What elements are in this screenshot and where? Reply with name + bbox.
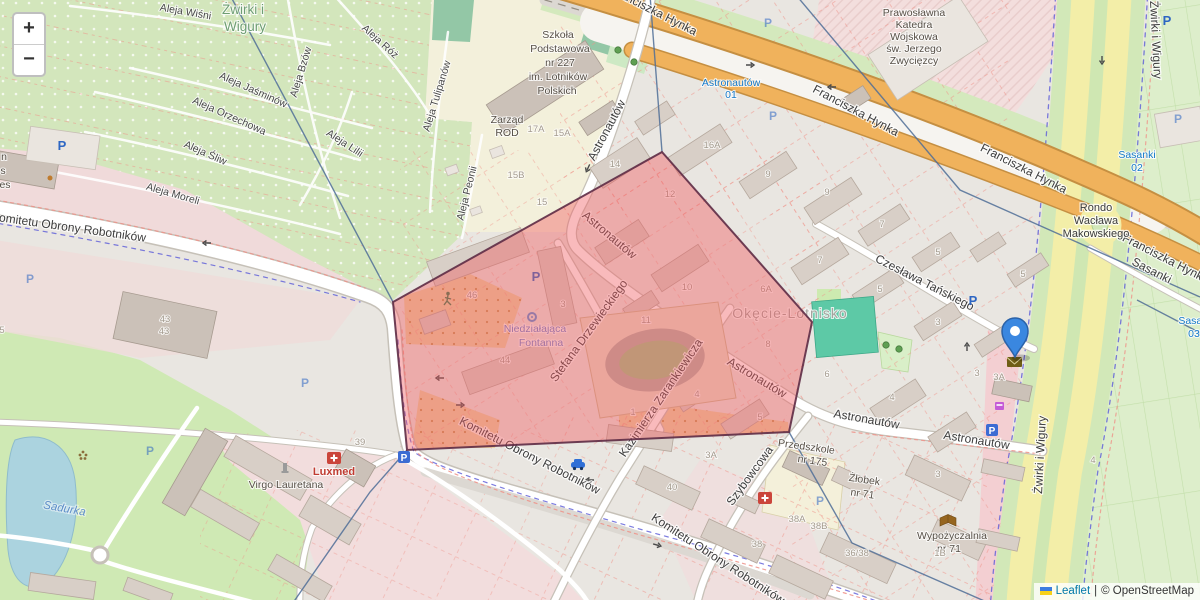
bus-stop-label: 02 bbox=[1131, 162, 1143, 174]
zoom-control: + − bbox=[12, 12, 46, 77]
poi-label: im. Lotników bbox=[529, 71, 588, 83]
map-canvas[interactable]: Żwirki iWiguryOkęcie-LotniskoSadurka Kom… bbox=[0, 0, 1200, 600]
parking-icon: P bbox=[969, 293, 978, 308]
bus-stop-label: 01 bbox=[725, 89, 737, 101]
poi-dot bbox=[48, 176, 53, 181]
parking-icon: P bbox=[764, 16, 772, 30]
house-number: 9 bbox=[765, 169, 770, 180]
street-label: Makowskiego bbox=[1063, 228, 1130, 240]
poi-label: ROD bbox=[495, 127, 519, 139]
parking-icon: P bbox=[26, 272, 34, 286]
poi-label: Prawosławna bbox=[883, 7, 946, 19]
area-label: Wigury bbox=[224, 19, 266, 34]
first-aid-icon bbox=[327, 452, 341, 464]
bus-stop-label: Sasanki bbox=[1178, 315, 1200, 327]
parking-icon: P bbox=[58, 138, 67, 153]
house-number: 16A bbox=[704, 140, 722, 151]
house-number: 1B bbox=[934, 548, 946, 559]
zoom-out-button[interactable]: − bbox=[14, 44, 44, 75]
parking-icon: P bbox=[146, 444, 154, 458]
house-number: 6 bbox=[824, 369, 829, 380]
house-number: 9 bbox=[824, 187, 829, 198]
leaflet-link[interactable]: Leaflet bbox=[1056, 585, 1091, 597]
bus-stop-label: Sasanki bbox=[1118, 149, 1155, 161]
poi-label: n bbox=[1, 151, 7, 163]
house-number: 3 bbox=[935, 469, 940, 480]
poi-label: Virgo Lauretana bbox=[249, 479, 324, 491]
shop-icon bbox=[995, 402, 1004, 410]
house-number: 3 bbox=[974, 368, 979, 379]
house-number: 14 bbox=[610, 159, 621, 170]
house-number: 43 bbox=[160, 314, 171, 325]
poi-label: Wypożyczalnia bbox=[917, 530, 987, 542]
poi-label: nr 227 bbox=[545, 57, 575, 69]
house-number: 4 bbox=[889, 392, 894, 403]
poi-label: Polskich bbox=[537, 85, 576, 97]
parking-entrance-icon: P bbox=[989, 426, 996, 437]
ukraine-flag-icon bbox=[1040, 587, 1052, 595]
parking-icon: P bbox=[301, 376, 309, 390]
area-label: Żwirki i bbox=[222, 2, 264, 17]
house-number: 38B bbox=[811, 521, 828, 532]
house-number: 17A bbox=[528, 124, 546, 135]
house-number: 15A bbox=[554, 128, 572, 139]
poi-label: Katedra bbox=[896, 19, 933, 31]
house-number: 3A bbox=[993, 372, 1005, 383]
house-number: 15B bbox=[508, 170, 525, 181]
poi-label: Zarząd bbox=[491, 114, 524, 126]
house-number: 5 bbox=[877, 284, 882, 295]
poi-label: Szkoła bbox=[542, 29, 574, 41]
house-number: 3A bbox=[705, 450, 717, 461]
house-number: 39 bbox=[355, 437, 366, 448]
poi-label: es bbox=[0, 179, 11, 191]
parking-entrance-icon: P bbox=[401, 453, 408, 464]
map-tiles: Żwirki iWiguryOkęcie-LotniskoSadurka Kom… bbox=[0, 0, 1200, 600]
house-number: 38A bbox=[789, 514, 807, 525]
osm-attribution: © OpenStreetMap bbox=[1101, 585, 1194, 597]
house-number: 15 bbox=[537, 197, 548, 208]
house-number: 5 bbox=[0, 325, 5, 336]
parking-icon: P bbox=[816, 494, 824, 508]
house-number: 36/38 bbox=[845, 548, 869, 559]
marker-pin-hole bbox=[1010, 326, 1020, 336]
house-number: 4 bbox=[1090, 455, 1095, 466]
house-number: 38 bbox=[752, 539, 763, 550]
house-number: 40 bbox=[667, 482, 678, 493]
house-number: 43 bbox=[159, 326, 170, 337]
tree-icon bbox=[615, 47, 621, 53]
bus-stop-label: 03 bbox=[1188, 328, 1200, 340]
house-number: 5 bbox=[935, 247, 940, 258]
poi-label: Luxmed bbox=[313, 466, 355, 478]
bus-stop-label: Astronautów bbox=[702, 77, 761, 89]
poi-label: św. Jerzego bbox=[886, 43, 942, 55]
hospital-icon bbox=[758, 492, 772, 504]
parking-icon: P bbox=[1174, 112, 1182, 126]
house-number: 7 bbox=[879, 219, 884, 230]
house-number: 7 bbox=[817, 255, 822, 266]
parking-icon: P bbox=[1163, 13, 1172, 28]
attribution-bar: Leaflet | © OpenStreetMap bbox=[1034, 583, 1200, 600]
attribution-separator: | bbox=[1094, 585, 1097, 597]
parking-icon: P bbox=[769, 109, 777, 123]
poi-label: Podstawowa bbox=[530, 43, 590, 55]
zoom-in-button[interactable]: + bbox=[14, 14, 44, 44]
house-number: 5 bbox=[1020, 269, 1025, 280]
street-label: Wacława bbox=[1074, 215, 1119, 227]
poi-label: Zwycięzcy bbox=[890, 55, 939, 67]
tree-icon bbox=[883, 342, 889, 348]
house-number: 3 bbox=[935, 317, 940, 328]
tree-icon bbox=[631, 59, 637, 65]
poi-label: Wojskowa bbox=[890, 31, 938, 43]
street-label: Rondo bbox=[1080, 202, 1112, 214]
poi-label: s bbox=[0, 165, 5, 177]
tree-icon bbox=[896, 346, 902, 352]
